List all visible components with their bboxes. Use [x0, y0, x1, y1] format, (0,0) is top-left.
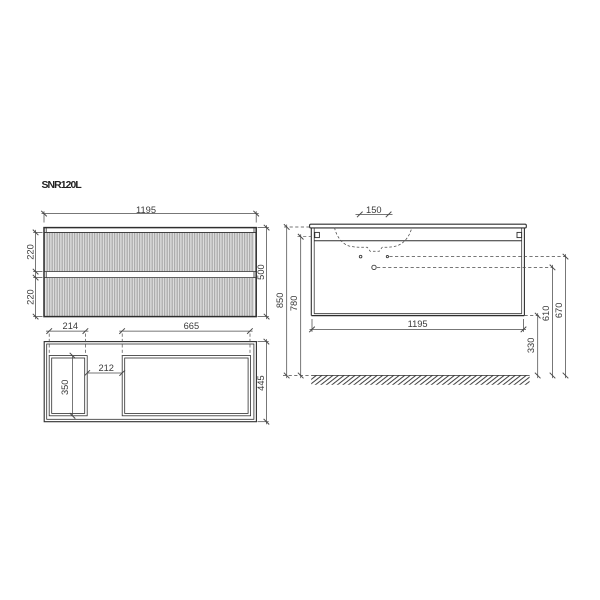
- svg-text:214: 214: [63, 321, 79, 331]
- svg-text:445: 445: [256, 375, 266, 391]
- svg-text:220: 220: [25, 289, 35, 305]
- svg-text:850: 850: [275, 293, 285, 309]
- svg-text:1195: 1195: [408, 319, 428, 329]
- svg-text:220: 220: [25, 244, 35, 260]
- svg-text:SNR120L: SNR120L: [42, 180, 83, 191]
- svg-text:1195: 1195: [136, 205, 156, 215]
- svg-text:350: 350: [60, 380, 70, 396]
- svg-text:610: 610: [541, 306, 551, 322]
- svg-text:150: 150: [366, 205, 382, 215]
- svg-text:665: 665: [184, 321, 200, 331]
- svg-text:780: 780: [289, 296, 299, 312]
- svg-text:670: 670: [554, 303, 564, 319]
- svg-text:330: 330: [526, 338, 536, 354]
- svg-text:500: 500: [256, 264, 266, 280]
- svg-text:212: 212: [98, 363, 114, 373]
